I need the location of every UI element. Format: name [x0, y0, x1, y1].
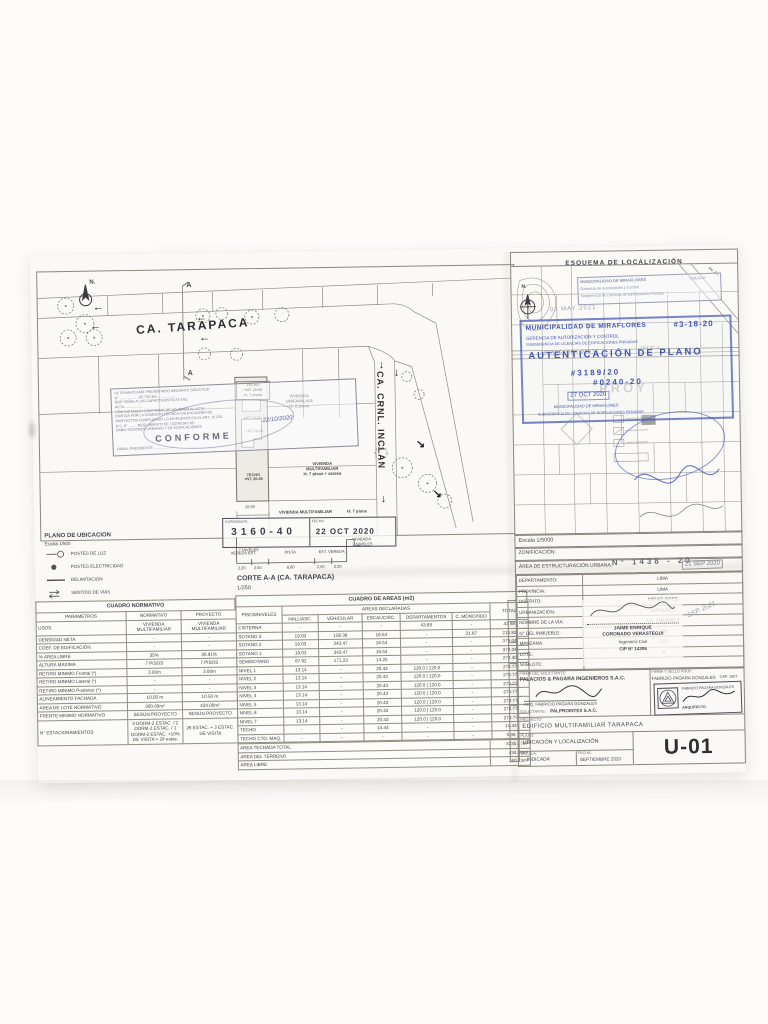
cuadro-normativo-table: PARAMETROS NORMATIVO PROYECTO USOSVIVIEN…: [36, 609, 239, 746]
expediente-label: EXPEDIENTE:: [225, 520, 248, 524]
fecha-title-value: SEPTIEMBRE 2020: [580, 756, 621, 762]
frontage-dimension: 10.50: [245, 505, 255, 510]
professional-name: FABRIZIO PAGARA GONZALES: [652, 675, 716, 681]
blue-stamp-number: #3-18-20: [673, 319, 713, 329]
gray-stamp: MUNICIPALIDAD DE MIRAFLORES FOLIO N° Ger…: [577, 272, 722, 305]
blue-stamp-foot1: MUNICIPALIDAD DE MIRAFLORES: [554, 403, 619, 409]
flow-arrow-icon: ↘: [416, 438, 425, 451]
conforme-stamp: SE FIRMA PLANO PRESENTADO MEDIANTE SOLIC…: [110, 378, 359, 456]
flow-arrow-icon: ←: [93, 301, 104, 314]
cuadro-areas: CUADRO DE AREAS (m2) PISOS/NIVELES AREAS…: [235, 591, 530, 770]
map-north-label: N.: [521, 285, 526, 291]
engineer-title: Ingeniero Civil: [583, 638, 683, 645]
corte-right-building-label: VIVIENDA 2 NIVELES: [352, 537, 372, 547]
flow-arrow-icon: ←: [199, 332, 210, 345]
proyecto-value: EDIFICIO MULTIFAMILIAR TARAPACA: [522, 722, 643, 731]
table-cell: -: [454, 730, 492, 739]
plan-scale: Escala 1/500: [44, 541, 70, 547]
esquema-escala: Escala 1/5000: [518, 537, 553, 544]
company-rep-name: ARQ. FABRICIO PAGARA GONZALES: [524, 700, 597, 708]
firma-prof-label: FIRMA Y SELLO PROF.:: [651, 669, 693, 674]
zonificacion-label: ZONIFICACIÓN:: [519, 550, 556, 556]
blue-stamp-muni: MUNICIPALIDAD DE MIRAFLORES: [526, 322, 647, 333]
table-cell: -: [364, 732, 402, 741]
table-cell: -: [284, 733, 320, 742]
cap-logo-icon: [657, 687, 680, 710]
escala-value: INDICADA: [527, 757, 550, 763]
corte-dim: 2.20: [238, 566, 246, 571]
sheet-number: U-01: [664, 734, 714, 759]
flow-arrow-icon: ←: [90, 320, 101, 333]
plan-title: PLANO DE UBICACION: [44, 532, 111, 540]
corte-dim: 6.80: [287, 565, 295, 570]
table-cell: TECHO CTO. MAQ.: [238, 734, 284, 743]
gray-stamp-muni: MUNICIPALIDAD DE MIRAFLORES: [580, 278, 646, 285]
engineer-block: JAIME ENRIQUE CORONADO VERASTEGUI Ingeni…: [582, 598, 683, 666]
corte-seg-pista: PISTA: [285, 550, 296, 555]
blue-stamp-exp2: #0240-20: [593, 377, 643, 387]
legend-sentido-vias: SENTIDO DE VÍAS: [71, 589, 110, 595]
proyecto-label: PROYECTO:: [520, 718, 542, 723]
section-marker-bottom: A: [188, 370, 193, 378]
legend-postes-electricidad: POSTES ELECTRICIDAD: [71, 563, 124, 569]
areas-col-pisos: PISOS/NIVELES: [236, 606, 282, 624]
solicitante-value: PALPROINTEX S.A.C.: [550, 708, 597, 714]
corte-dim: 2.50: [317, 565, 325, 570]
flow-arrow-icon: ↓: [379, 359, 385, 372]
architect-signature: [681, 688, 737, 706]
plano-label: PLANO:: [520, 734, 534, 739]
area-stamp-number: N° 1438 - 20: [612, 556, 693, 568]
gray-stamp-gerencia: Gerencia de Autorización y Control: [580, 285, 639, 291]
cuadro-normativo: CUADRO NORMATIVO PARAMETROS NORMATIVO PR…: [35, 598, 237, 746]
blue-stamp-date: 27 OCT 2020: [567, 391, 609, 401]
solicitante-company: PALACIOS & PAGARA INGENIEROS S.A.C.: [520, 676, 626, 684]
street-label-inclan: CA. CRNL. INCLAN: [375, 371, 387, 469]
cuadro-areas-totals: AREA TECHADA TOTAL3235.17m²AREA DEL TERR…: [238, 739, 531, 770]
blue-stamp-foot2: SUBGERENCIA DE LICENCIAS DE EDIFICACIONE…: [538, 410, 644, 417]
table-cell: -: [320, 732, 364, 741]
professional-cap: CAP. 1607: [720, 675, 738, 680]
fecha-label: FECHA:: [312, 519, 325, 523]
company-signature: [534, 684, 604, 701]
table-cell: VIVIENDA MULTIFAMILIAR: [181, 618, 236, 633]
table-cell: -: [402, 731, 454, 740]
building-label-techo-2: TECHO +NT. 20.65: [241, 473, 265, 482]
corte-dim: 2.50: [254, 566, 262, 571]
blue-stamp-autenticacion: AUTENTICACIÓN DE PLANO: [528, 347, 703, 362]
drawing-sheet: CA. TARAPACA CA. CRNL. INCLAN N. A A ← ←…: [30, 244, 746, 783]
page-bottom-shadow: [0, 780, 768, 806]
blue-stamp-subgerencia: SUBGERENCIA DE LICENCIAS DE EDIFICACIONE…: [526, 340, 638, 347]
flow-arrow-icon: ←: [196, 312, 207, 325]
table-row: N° ESTACIONAMIENTOS3 DORM-2 ESTAC. / 2 D…: [38, 717, 238, 745]
corte-seg-est-vereda: EST. VEREDA: [319, 550, 345, 555]
engineer-name: JAIME ENRIQUE CORONADO VERASTEGUI: [583, 625, 683, 638]
gray-stamp-folio: FOLIO N°: [690, 276, 706, 281]
corte-scale: 1/250: [237, 585, 251, 592]
blue-stamp-exp1: #3189/20: [571, 367, 621, 377]
architect-stamp-title: ARQUITECTO: [682, 705, 706, 710]
flow-arrow-icon: ↘: [433, 488, 442, 501]
site-plan-frame: CA. TARAPACA CA. CRNL. INCLAN N. A A ← ←…: [36, 264, 518, 541]
gray-stamp-subgerencia: Subgerencia de Licencias de Edificacione…: [581, 291, 664, 298]
blue-auth-stamp: MUNICIPALIDAD DE MIRAFLORES #3-18-20 GER…: [519, 314, 734, 424]
legend-postes-luz: POSTES DE LUZ: [71, 550, 107, 556]
solicitante-label: SOLICITANTE:: [520, 710, 546, 715]
building-label-multifam-7: VIVIENDA MULTIFAMILIAR: [279, 510, 332, 516]
north-label: N.: [89, 280, 95, 287]
area-stamp-date: 21 SEP 2020: [682, 559, 724, 569]
table-cell: VIVIENDA MULTIFAMILIAR: [126, 619, 181, 634]
right-column: ESQUEMA DE LOCALIZACIÓN: [510, 249, 744, 765]
engineer-cip: CIP N° 14306: [583, 645, 683, 652]
area-urbana-label: ÁREA DE ESTRUCTURACIÓN URBANA:: [519, 563, 612, 570]
building-label-multifam-azotea: VIVIENDA MULTIFAMILIAR H: 7 pisos + azot…: [292, 462, 352, 477]
sheet-number-box: U-01: [632, 729, 745, 764]
corte-seg-vereda-est: VEREDA EST.: [231, 551, 257, 556]
table-cell: 26 ESTAC. + 3 ESTAC. DE VISITA: [183, 717, 238, 743]
flow-arrow-icon: ↓: [381, 493, 387, 506]
engineer-signature: [586, 598, 676, 621]
legend-delimitacion: DELIMITACIÓN: [71, 576, 103, 582]
corte-dim: 2.20: [334, 565, 342, 570]
table-cell: USOS: [36, 620, 126, 635]
table-cell: N° ESTACIONAMIENTOS: [38, 719, 128, 745]
section-marker-top: A: [186, 282, 191, 290]
table-cell: 3 DORM-2 ESTAC. / 2 DORM-2 ESTAC. / 1 DO…: [128, 718, 183, 744]
title-block: FIRMA DEL SOLICITANTE: PALACIOS & PAGARA…: [516, 666, 745, 767]
corte-section: VEREDA EST. PISTA EST. VEREDA 2.20 2.50 …: [200, 532, 451, 596]
plan-legend: PLANO DE UBICACION Escala 1/500 POSTES D…: [44, 531, 205, 600]
flow-arrow-icon: ↓: [394, 367, 400, 380]
architect-stamp: FABRIZIO PAGARA GONZALES ARQUITECTO: [653, 681, 742, 716]
plano-value: UBICACIÓN Y LOCALIZACIÓN: [523, 739, 599, 746]
esquema-map: N. AV. ANGAMOS OESTE AV. AN. LEY N° 2...…: [510, 262, 742, 536]
property-fields: DEPARTAMENTO:LIMAPROVINCIA:LIMADISTRITO:…: [515, 570, 745, 672]
cuadro-areas-table: PISOS/NIVELES AREAS DECLARADAS TOTAL HAL…: [235, 602, 530, 744]
building-label-multifam-7-h: H: 7 pisos: [347, 509, 367, 514]
corte-title: CORTE A-A (CA. TARAPACA): [237, 574, 334, 584]
escala-label: ESCALA:: [521, 752, 537, 757]
fecha-title-label: FECHA:: [578, 751, 592, 756]
legend-symbols: [47, 550, 68, 600]
